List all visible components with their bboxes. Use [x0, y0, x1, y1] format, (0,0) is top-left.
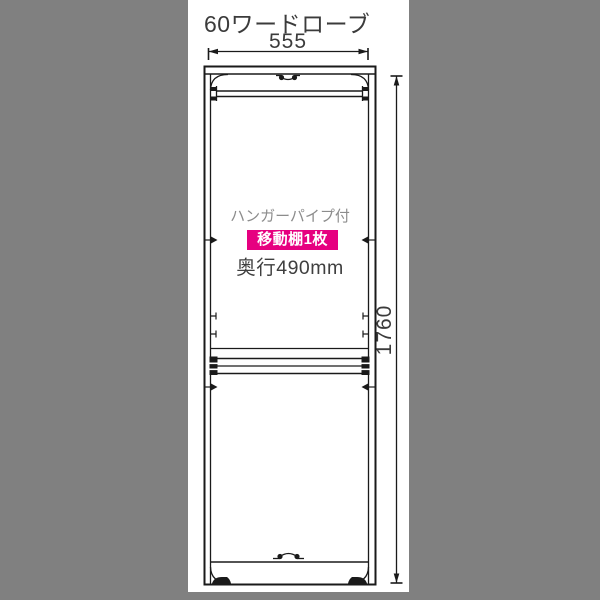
movable-shelf-badge: 移動棚1枚 — [247, 230, 338, 250]
depth-label: 奥行490mm — [211, 251, 369, 280]
page-background: 60ワードローブ 555 1760 ハンガーパイプ付 移動棚1枚 奥行490mm — [0, 0, 600, 600]
width-dimension-label: 555 — [208, 30, 368, 54]
diagram-panel — [188, 0, 409, 592]
hanger-pipe-label: ハンガーパイプ付 — [211, 205, 369, 226]
height-dimension-label: 1760 — [373, 305, 397, 356]
